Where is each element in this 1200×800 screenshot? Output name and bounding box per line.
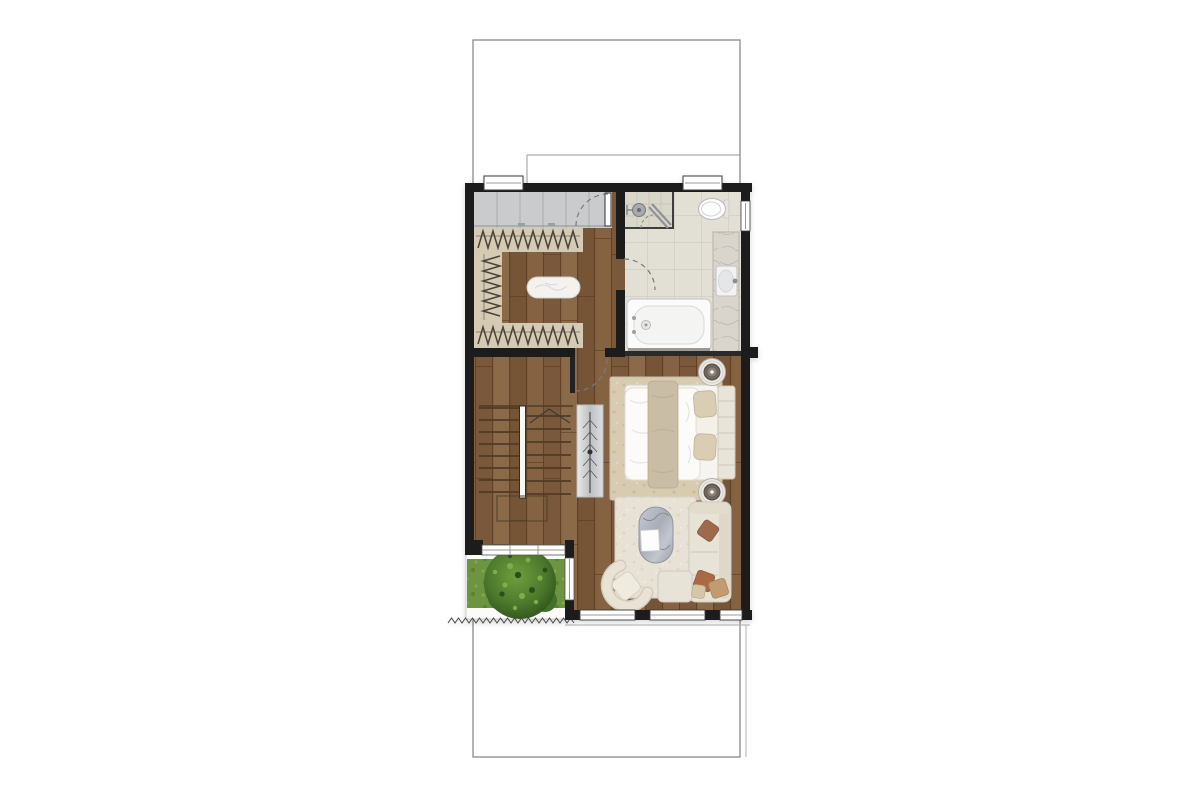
sofa-chaise xyxy=(658,571,692,602)
sink-faucet xyxy=(733,279,738,284)
pillow-small xyxy=(691,584,706,599)
table-tray xyxy=(640,530,659,552)
wall-balcony-divider-top xyxy=(565,540,574,560)
wall-bottom-pier-3 xyxy=(705,610,720,620)
building xyxy=(448,176,758,623)
wall-left xyxy=(465,183,474,555)
door-leaf xyxy=(605,193,611,226)
marble-coffee-table xyxy=(639,507,673,563)
wall-bottom-pier-2 xyxy=(635,610,650,620)
bathtub xyxy=(627,299,711,351)
toilet xyxy=(699,199,730,220)
sofa-armrest xyxy=(690,503,730,514)
stair-railing xyxy=(520,406,526,498)
wall-bottom-pier-4 xyxy=(742,610,752,620)
top-window-right xyxy=(683,176,722,190)
side-table-bottom xyxy=(699,479,726,506)
wall-jamb xyxy=(605,348,625,357)
wall-pier-right xyxy=(750,347,758,358)
bedroom xyxy=(610,359,735,506)
door-leaf xyxy=(570,357,575,393)
floor-plan-drawing xyxy=(0,0,1200,800)
balcony-glazing-band xyxy=(482,545,565,555)
shower xyxy=(625,192,673,228)
side-table-top xyxy=(699,359,726,386)
wardrobe-handle xyxy=(548,223,555,226)
vanity-sink xyxy=(713,232,739,352)
sill-projection-line xyxy=(565,625,750,757)
wardrobe-handle xyxy=(518,223,525,226)
console-table xyxy=(577,405,603,497)
pillow-tan-bottom xyxy=(693,433,716,460)
side-window-bathroom xyxy=(741,201,750,231)
balcony-garden xyxy=(448,547,574,623)
wall-bath-divider-upper xyxy=(616,183,625,259)
wall-bath-divider-lower xyxy=(616,290,625,357)
balcony-divider-window xyxy=(565,558,574,600)
floor-plan-page xyxy=(0,0,1200,800)
wall-closet-bottom xyxy=(465,348,575,357)
pillow-tan-top xyxy=(693,390,717,417)
ottoman-bench xyxy=(527,277,580,298)
double-bed xyxy=(625,381,735,488)
wall-bath-bottom-thin xyxy=(625,351,741,356)
wall-bottom-pier-1 xyxy=(567,610,580,620)
fern-knot xyxy=(588,450,593,455)
top-window-left xyxy=(484,176,523,190)
tub-faucet xyxy=(632,316,636,320)
wall-pier-left xyxy=(465,540,483,555)
living-corner xyxy=(598,497,731,615)
wall-right xyxy=(741,183,750,620)
